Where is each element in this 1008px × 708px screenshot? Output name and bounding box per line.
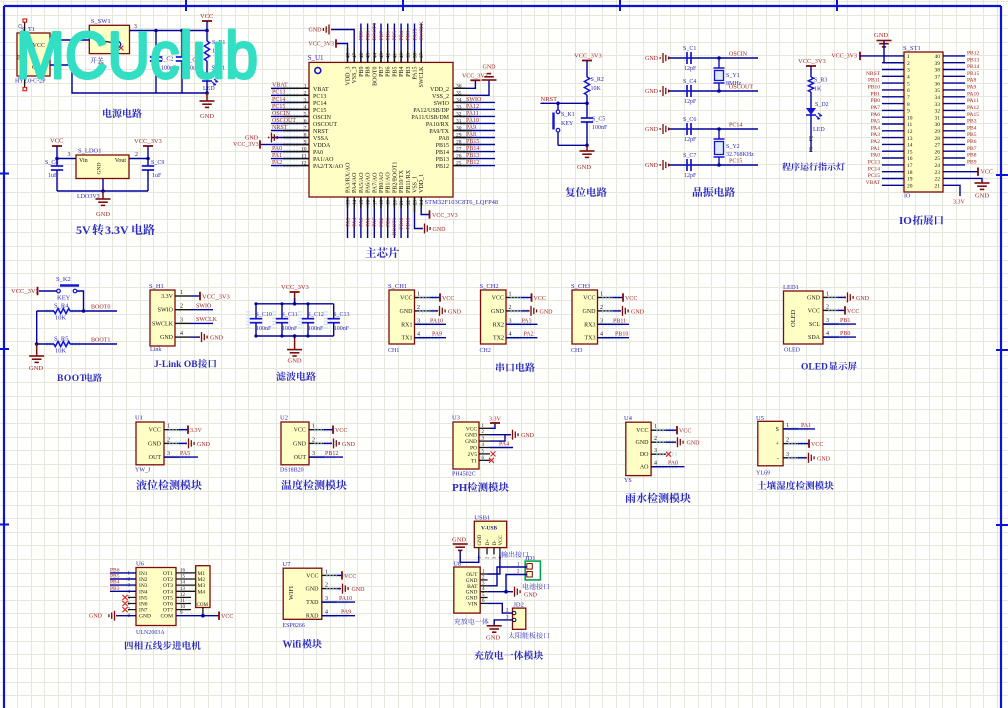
svg-text:19: 19 <box>907 177 913 183</box>
svg-text:12: 12 <box>907 129 913 135</box>
svg-text:10K: 10K <box>55 315 67 322</box>
svg-text:OT7: OT7 <box>163 608 173 614</box>
svg-text:26: 26 <box>456 154 462 160</box>
svg-text:S_C4: S_C4 <box>683 79 696 85</box>
svg-text:PB8: PB8 <box>366 67 372 77</box>
svg-text:36: 36 <box>935 81 941 87</box>
svg-text:3.3V: 3.3V <box>190 428 203 434</box>
svg-text:PB14: PB14 <box>436 150 449 156</box>
svg-text:PC13: PC13 <box>868 160 880 166</box>
svg-text:S_CH2: S_CH2 <box>480 283 499 290</box>
svg-text:3.3V: 3.3V <box>489 417 502 423</box>
svg-text:27: 27 <box>456 147 462 153</box>
svg-text:J-Link OB: J-Link OB <box>154 360 198 370</box>
svg-text:YW_J: YW_J <box>135 468 151 474</box>
svg-text:PA10: PA10 <box>339 596 352 602</box>
svg-text:GND: GND <box>645 89 659 95</box>
svg-text:12pF: 12pF <box>684 66 697 72</box>
svg-text:33: 33 <box>935 102 941 108</box>
svg-text:PA8: PA8 <box>967 78 977 84</box>
svg-text:OT1: OT1 <box>163 571 173 577</box>
svg-text:GND: GND <box>807 295 821 301</box>
svg-text:IO: IO <box>904 194 911 200</box>
svg-text:IN5: IN5 <box>139 595 148 601</box>
svg-text:8: 8 <box>304 133 307 139</box>
svg-text:PA5: PA5 <box>359 217 365 227</box>
svg-text:OLED: OLED <box>801 363 828 373</box>
svg-text:OSCOUT: OSCOUT <box>313 122 337 128</box>
svg-text:PB1: PB1 <box>386 217 392 227</box>
svg-text:PA4: PA4 <box>871 125 881 131</box>
svg-text:USB1: USB1 <box>474 515 490 522</box>
svg-text:SWCLK: SWCLK <box>419 66 425 88</box>
svg-text:PA7/AO: PA7/AO <box>372 172 378 193</box>
svg-text:Link: Link <box>150 347 161 353</box>
svg-text:PA2: PA2 <box>272 160 282 166</box>
svg-text:6: 6 <box>907 88 910 94</box>
svg-text:PB3: PB3 <box>406 67 412 77</box>
svg-text:VCC: VCC <box>294 428 306 434</box>
svg-text:GND: GND <box>645 163 659 169</box>
svg-text:BOOT1: BOOT1 <box>392 217 398 235</box>
svg-text:STM32F103C8T6_LQFP48: STM32F103C8T6_LQFP48 <box>425 199 499 206</box>
svg-text:29: 29 <box>456 133 462 139</box>
svg-text:S_H1: S_H1 <box>149 283 164 290</box>
svg-text:GND: GND <box>148 441 162 447</box>
svg-text:12pF: 12pF <box>684 173 697 179</box>
svg-text:2: 2 <box>135 152 138 158</box>
svg-text:GND: GND <box>491 309 505 315</box>
svg-text:PA5: PA5 <box>180 451 190 457</box>
svg-text:PB12: PB12 <box>325 451 338 457</box>
svg-text:PA0: PA0 <box>313 150 323 156</box>
svg-text:1: 1 <box>180 290 183 296</box>
svg-text:S_C7: S_C7 <box>683 153 696 159</box>
svg-text:3: 3 <box>68 152 71 158</box>
svg-text:PA9: PA9 <box>466 125 476 131</box>
svg-text:VCC: VCC <box>625 296 637 302</box>
svg-text:RX2: RX2 <box>493 322 504 328</box>
svg-text:VDD_2: VDD_2 <box>430 87 449 93</box>
svg-text:PA10: PA10 <box>430 318 443 324</box>
svg-text:PA2: PA2 <box>524 332 534 338</box>
svg-text:VCC_3V3: VCC_3V3 <box>831 54 857 60</box>
svg-text:PA8: PA8 <box>466 132 476 138</box>
svg-text:29: 29 <box>935 129 941 135</box>
svg-text:4: 4 <box>907 75 910 81</box>
svg-text:PA5/AO: PA5/AO <box>359 172 365 193</box>
svg-text:PA8: PA8 <box>439 136 449 142</box>
svg-text:M1: M1 <box>198 571 206 577</box>
svg-text:PA1/AO: PA1/AO <box>313 157 334 163</box>
svg-text:PB5: PB5 <box>392 31 398 41</box>
svg-text:GND: GND <box>524 593 538 599</box>
svg-text:VCC: VCC <box>344 574 356 580</box>
svg-text:S_U1: S_U1 <box>308 54 324 62</box>
svg-text:RX1: RX1 <box>401 322 412 328</box>
svg-text:NRST: NRST <box>541 96 558 103</box>
svg-text:S_K2: S_K2 <box>56 276 71 283</box>
svg-text:PA15: PA15 <box>967 112 979 118</box>
svg-text:21: 21 <box>935 184 941 190</box>
svg-text:PB7: PB7 <box>379 67 385 77</box>
svg-text:5: 5 <box>907 81 910 87</box>
svg-text:PA6: PA6 <box>365 217 371 227</box>
svg-text:S_R3: S_R3 <box>814 78 827 84</box>
svg-text:P2: P2 <box>810 135 815 141</box>
svg-text:VCC: VCC <box>583 296 595 302</box>
svg-text:PB8: PB8 <box>365 31 371 41</box>
svg-text:CH3: CH3 <box>571 348 582 354</box>
svg-text:26: 26 <box>935 149 941 155</box>
svg-text:S_Y2: S_Y2 <box>726 144 740 150</box>
svg-text:GND: GND <box>465 439 477 445</box>
svg-text:S_C6: S_C6 <box>683 117 696 123</box>
svg-text:CH1: CH1 <box>388 348 399 354</box>
svg-text:T1: T1 <box>471 458 477 464</box>
svg-text:PA5: PA5 <box>871 119 881 125</box>
svg-text:S_C5: S_C5 <box>592 117 605 123</box>
svg-text:S_CH1: S_CH1 <box>388 283 407 290</box>
svg-text:S_C8: S_C8 <box>45 160 58 166</box>
svg-text:PA9: PA9 <box>341 610 351 616</box>
svg-text:PB9: PB9 <box>359 31 365 41</box>
svg-text:GND: GND <box>448 309 462 315</box>
svg-text:PA15: PA15 <box>412 28 418 40</box>
svg-text:31: 31 <box>935 115 941 121</box>
svg-text:OSCOUT: OSCOUT <box>272 118 296 124</box>
svg-text:PB10/TX: PB10/TX <box>399 169 405 193</box>
svg-text:2: 2 <box>485 557 490 559</box>
svg-text:PB12: PB12 <box>436 164 449 170</box>
svg-text:U4: U4 <box>624 415 633 422</box>
svg-text:PC15: PC15 <box>272 104 285 110</box>
svg-text:PA0: PA0 <box>668 461 678 467</box>
svg-text:VBAT: VBAT <box>272 83 288 89</box>
svg-text:GND: GND <box>89 614 103 620</box>
svg-text:GND: GND <box>645 127 659 133</box>
svg-text:PB5: PB5 <box>110 574 120 580</box>
svg-text:LED: LED <box>813 127 825 133</box>
svg-text:PB9: PB9 <box>967 160 977 166</box>
svg-text:GND: GND <box>400 309 414 315</box>
svg-text:CH2: CH2 <box>480 348 491 354</box>
svg-text:PA1: PA1 <box>871 146 881 152</box>
svg-text:VCC_3V3: VCC_3V3 <box>308 42 334 48</box>
svg-text:IN3: IN3 <box>139 583 148 589</box>
svg-text:GND: GND <box>636 440 650 446</box>
svg-text:SWIO: SWIO <box>466 97 482 103</box>
svg-text:PB10: PB10 <box>399 217 405 229</box>
svg-text:PB11/RX: PB11/RX <box>406 169 412 193</box>
svg-text:VCC: VCC <box>466 426 478 432</box>
svg-text:KEY: KEY <box>561 121 574 127</box>
svg-text:4: 4 <box>180 331 183 337</box>
svg-text:U2: U2 <box>280 415 288 422</box>
svg-text:S_R2: S_R2 <box>591 77 604 83</box>
svg-text:VCC: VCC <box>981 170 993 176</box>
svg-text:PB8: PB8 <box>967 153 977 159</box>
svg-text:PA12/USB/DP: PA12/USB/DP <box>413 108 449 114</box>
svg-text:PA6/AO: PA6/AO <box>366 172 372 193</box>
svg-text:GND: GND <box>139 614 151 620</box>
svg-text:OT4: OT4 <box>163 589 173 595</box>
svg-text:24: 24 <box>935 163 941 169</box>
svg-text:PB4: PB4 <box>110 580 120 586</box>
svg-text:OLED: OLED <box>790 309 797 327</box>
svg-text:PB6: PB6 <box>386 31 392 41</box>
svg-text:IN2: IN2 <box>139 577 148 583</box>
svg-text:COM: COM <box>197 603 209 608</box>
svg-text:S_C12: S_C12 <box>308 312 324 318</box>
svg-text:VCC_3V3: VCC_3V3 <box>134 138 162 145</box>
svg-text:S_C11: S_C11 <box>282 312 298 318</box>
svg-text:38: 38 <box>935 68 941 74</box>
svg-text:VCC: VCC <box>499 535 504 546</box>
svg-text:PC13: PC13 <box>272 90 285 96</box>
svg-text:VCC: VCC <box>534 296 546 302</box>
svg-text:5: 5 <box>304 111 307 117</box>
svg-text:OUT: OUT <box>294 455 307 461</box>
svg-text:D-: D- <box>493 540 498 546</box>
svg-text:100nF: 100nF <box>308 326 324 332</box>
svg-text:9: 9 <box>304 140 307 146</box>
svg-text:GND: GND <box>29 365 43 372</box>
svg-text:BOOT0: BOOT0 <box>372 67 378 86</box>
svg-text:GND: GND <box>856 296 870 302</box>
svg-text:GND: GND <box>97 163 103 175</box>
svg-text:VCC_3V3: VCC_3V3 <box>574 53 602 60</box>
svg-text:34: 34 <box>935 95 941 101</box>
svg-text:PA10/RX: PA10/RX <box>426 122 450 128</box>
svg-text:NRST: NRST <box>272 125 288 131</box>
svg-text:LED1: LED1 <box>783 284 799 291</box>
svg-text:10: 10 <box>301 147 307 153</box>
svg-text:OSCIN: OSCIN <box>272 111 291 117</box>
svg-text:U6: U6 <box>136 561 145 568</box>
svg-text:2V5: 2V5 <box>468 452 478 458</box>
svg-text:U1: U1 <box>135 415 143 422</box>
svg-text:PA2: PA2 <box>871 139 881 145</box>
svg-text:OT5: OT5 <box>163 595 173 601</box>
svg-text:PB5: PB5 <box>967 132 977 138</box>
svg-text:10: 10 <box>907 115 913 121</box>
svg-text:PC14: PC14 <box>868 166 880 172</box>
svg-text:GND: GND <box>483 65 497 71</box>
svg-text:28: 28 <box>456 140 462 146</box>
svg-text:COM: COM <box>160 614 173 620</box>
svg-text:SWCLK: SWCLK <box>196 317 218 323</box>
svg-text:GND: GND <box>452 537 466 544</box>
svg-text:M4: M4 <box>198 589 206 595</box>
svg-text:VDD_3: VDD_3 <box>346 67 352 86</box>
svg-text:2: 2 <box>180 304 183 310</box>
svg-text:28: 28 <box>935 136 941 142</box>
svg-text:100nF: 100nF <box>592 125 608 131</box>
svg-text:S_CH3: S_CH3 <box>571 283 590 290</box>
svg-text:5V: 5V <box>76 223 91 237</box>
svg-text:PB0: PB0 <box>840 331 850 337</box>
svg-text:32.768KHz: 32.768KHz <box>726 152 754 158</box>
svg-text:25: 25 <box>935 156 941 162</box>
svg-text:M3: M3 <box>198 583 206 589</box>
svg-text:S_LDO1: S_LDO1 <box>78 148 101 155</box>
svg-text:VCC: VCC <box>636 428 648 434</box>
svg-text:37: 37 <box>935 75 941 81</box>
svg-text:32: 32 <box>935 109 941 115</box>
svg-text:OT6: OT6 <box>163 602 173 608</box>
svg-text:VBAT: VBAT <box>313 87 329 93</box>
svg-text:OT2: OT2 <box>163 577 173 583</box>
svg-text:3: 3 <box>304 97 307 103</box>
svg-text:BOOT0: BOOT0 <box>91 305 110 311</box>
svg-text:ULN2003A: ULN2003A <box>136 630 165 636</box>
svg-text:VCC: VCC <box>335 428 347 434</box>
svg-text:11: 11 <box>907 122 913 128</box>
svg-text:PB11: PB11 <box>613 318 626 324</box>
svg-text:PA10: PA10 <box>466 118 479 124</box>
svg-text:BOOT: BOOT <box>57 374 87 384</box>
svg-text:1uF: 1uF <box>48 173 58 179</box>
svg-text:TX1: TX1 <box>402 336 413 342</box>
svg-text:PA2/TX/AO: PA2/TX/AO <box>313 164 344 170</box>
svg-text:PB12: PB12 <box>466 160 479 166</box>
svg-text:YL69: YL69 <box>756 471 770 477</box>
svg-text:GND: GND <box>293 441 307 447</box>
svg-text:GND: GND <box>288 358 302 365</box>
svg-text:VCC: VCC <box>679 429 691 435</box>
svg-text:OT3: OT3 <box>163 583 173 589</box>
svg-text:VCC: VCC <box>221 614 233 620</box>
svg-text:9: 9 <box>907 109 910 115</box>
svg-text:GND: GND <box>583 309 597 315</box>
svg-text:VCC_3V3: VCC_3V3 <box>462 74 488 80</box>
svg-text:V-USB: V-USB <box>481 526 497 532</box>
svg-text:GND: GND <box>352 587 366 593</box>
svg-text:PB13: PB13 <box>466 153 479 159</box>
svg-text:PB13: PB13 <box>967 57 979 63</box>
svg-text:D+: D+ <box>486 539 491 546</box>
svg-text:100nF: 100nF <box>256 326 272 332</box>
svg-text:BOOT0: BOOT0 <box>372 23 378 41</box>
svg-text:DO: DO <box>640 452 649 458</box>
svg-text:IN6: IN6 <box>139 602 148 608</box>
svg-text:RXD: RXD <box>306 614 319 620</box>
svg-text:1: 1 <box>907 54 910 60</box>
svg-text:WIFI: WIFI <box>288 586 295 600</box>
svg-text:NRST: NRST <box>866 71 881 77</box>
svg-text:PA3: PA3 <box>871 132 881 138</box>
svg-text:PA3/RX/AO: PA3/RX/AO <box>346 162 352 193</box>
svg-text:PB9: PB9 <box>359 67 365 77</box>
svg-text:15: 15 <box>907 149 913 155</box>
svg-text:VBAT: VBAT <box>866 180 881 186</box>
svg-text:PB1: PB1 <box>840 318 850 324</box>
svg-text:GND: GND <box>521 433 535 439</box>
svg-text:25: 25 <box>456 161 462 167</box>
svg-text:PB14: PB14 <box>466 146 479 152</box>
svg-text:PC14: PC14 <box>729 123 742 129</box>
svg-text:PB3: PB3 <box>406 31 412 41</box>
svg-text:PA4/AO: PA4/AO <box>352 172 358 193</box>
svg-text:10K: 10K <box>591 86 602 92</box>
svg-text:30: 30 <box>935 122 941 128</box>
svg-text:17: 17 <box>907 163 913 169</box>
svg-text:SWCLK: SWCLK <box>419 21 425 40</box>
svg-text:SWIO: SWIO <box>434 101 450 107</box>
svg-text:S_K1: S_K1 <box>561 112 575 118</box>
svg-text:GND: GND <box>465 433 477 439</box>
svg-text:OSCIN: OSCIN <box>313 115 332 121</box>
svg-text:VCC_3V3: VCC_3V3 <box>233 142 259 148</box>
svg-text:10K: 10K <box>55 348 67 355</box>
svg-text:PA6: PA6 <box>871 112 881 118</box>
svg-text:S_Y1: S_Y1 <box>726 73 740 79</box>
svg-text:VCC_3V3: VCC_3V3 <box>202 294 230 301</box>
svg-text:TXD: TXD <box>306 600 319 606</box>
svg-text:GND: GND <box>306 587 320 593</box>
svg-text:S_R4: S_R4 <box>54 303 69 310</box>
svg-text:3: 3 <box>180 317 183 323</box>
svg-text:PH4502C: PH4502C <box>452 472 476 478</box>
svg-text:VCC: VCC <box>50 138 63 145</box>
svg-text:GND: GND <box>342 442 356 448</box>
svg-text:6: 6 <box>304 118 307 124</box>
svg-text:VCC: VCC <box>808 308 820 314</box>
svg-text:S_R5: S_R5 <box>54 336 68 343</box>
svg-text:S_C1: S_C1 <box>683 46 696 52</box>
svg-text:SDA: SDA <box>808 335 821 341</box>
svg-text:14: 14 <box>907 143 913 149</box>
svg-text:PA7: PA7 <box>871 105 881 111</box>
svg-text:18: 18 <box>907 170 913 176</box>
svg-text:VDD_1: VDD_1 <box>419 174 425 193</box>
svg-text:VSS_3: VSS_3 <box>352 67 358 84</box>
svg-text:3.3V: 3.3V <box>161 294 174 300</box>
svg-text:7: 7 <box>907 95 910 101</box>
svg-text:GND: GND <box>200 113 214 120</box>
svg-text:VCC: VCC <box>811 442 823 448</box>
svg-text:1: 1 <box>304 83 307 89</box>
svg-text:PC14: PC14 <box>313 101 326 107</box>
svg-text:PA9/TX: PA9/TX <box>429 129 449 135</box>
svg-text:VCC_3V3: VCC_3V3 <box>11 288 39 295</box>
svg-text:-: - <box>777 456 779 462</box>
svg-text:VSSA: VSSA <box>313 136 329 142</box>
svg-text:NRST: NRST <box>313 129 329 135</box>
svg-text:1K: 1K <box>814 87 822 93</box>
svg-text:OUT: OUT <box>149 455 162 461</box>
svg-text:GND: GND <box>540 309 554 315</box>
svg-text:TX2: TX2 <box>493 336 504 342</box>
svg-text:S_C9: S_C9 <box>151 160 164 166</box>
svg-text:DS18B20: DS18B20 <box>280 468 304 474</box>
svg-text:GND: GND <box>645 56 659 62</box>
svg-text:100nF: 100nF <box>282 326 298 332</box>
svg-text:PB15: PB15 <box>967 71 979 77</box>
svg-text:PB12: PB12 <box>967 51 979 57</box>
svg-text:PC15: PC15 <box>729 159 742 165</box>
svg-text:2: 2 <box>304 90 307 96</box>
svg-text:RX3: RX3 <box>584 322 595 328</box>
svg-text:GND: GND <box>486 635 500 642</box>
svg-text:GND: GND <box>160 335 174 341</box>
svg-text:39: 39 <box>935 61 941 67</box>
svg-text:PA9: PA9 <box>432 332 442 338</box>
svg-text:PC14: PC14 <box>272 97 285 103</box>
svg-text:U3: U3 <box>452 415 460 422</box>
svg-text:U7: U7 <box>283 561 292 568</box>
